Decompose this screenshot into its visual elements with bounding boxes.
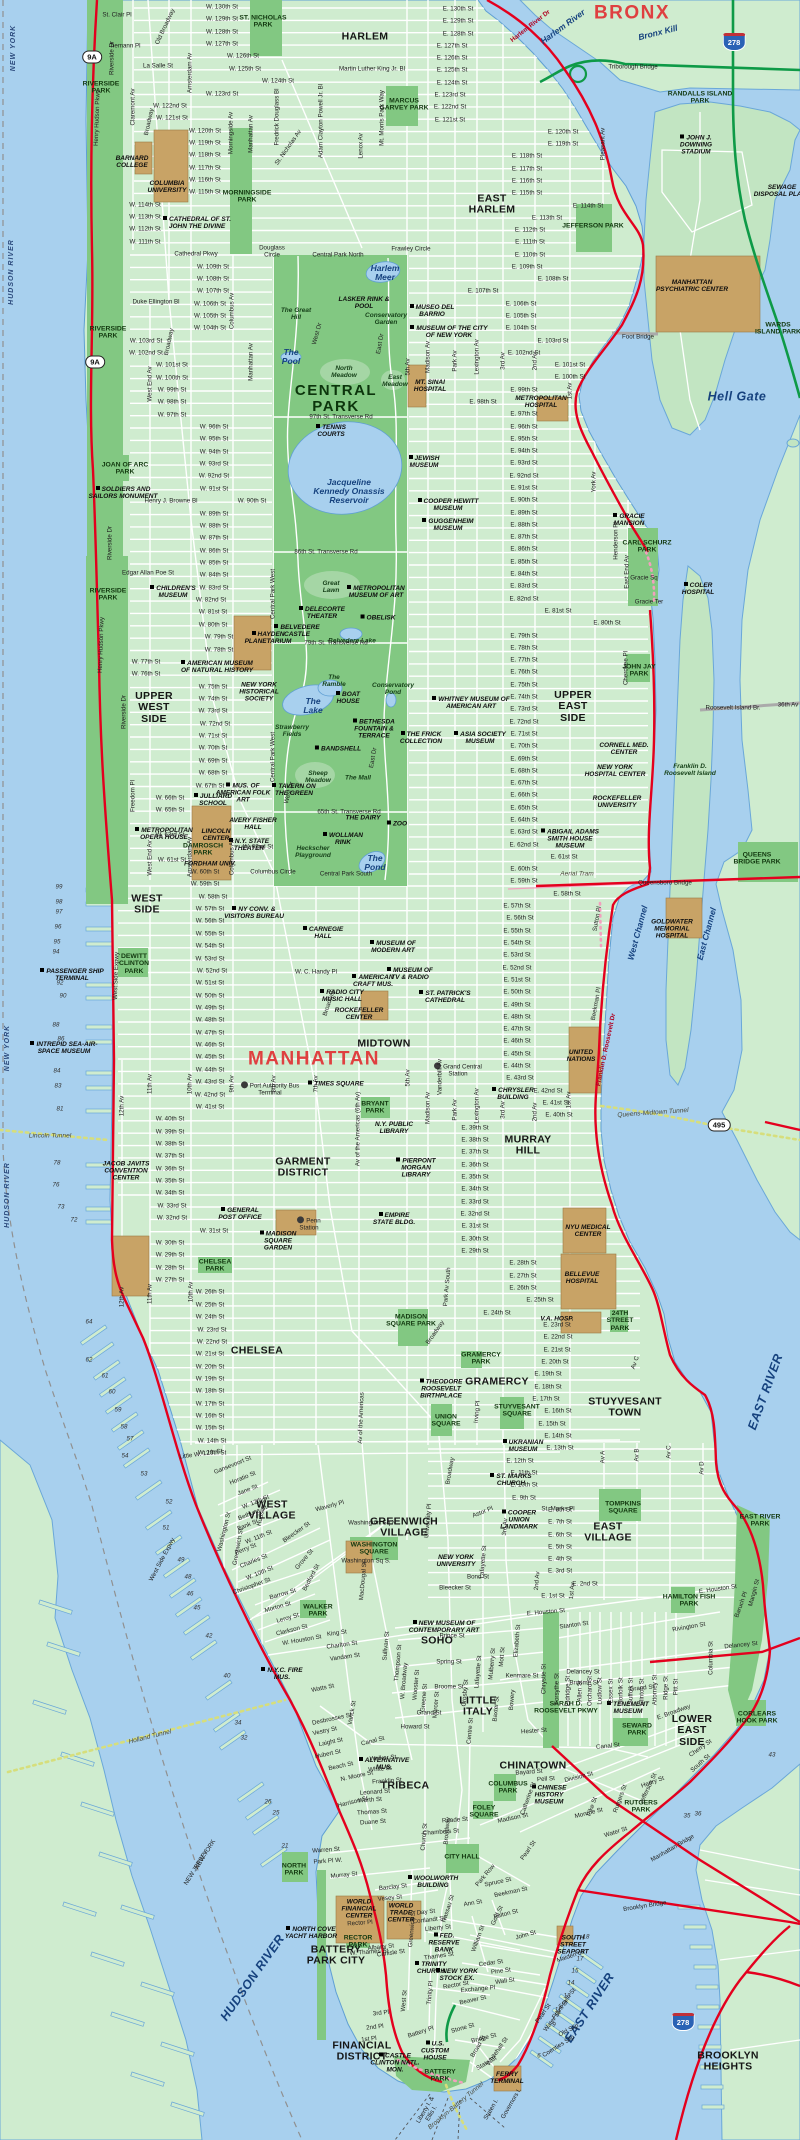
map-label-trinity-church: TRINITY CHURCH bbox=[410, 1961, 452, 1975]
street-label-w-51st-st: W. 51st St bbox=[196, 981, 224, 988]
street-label-w-100th-st: W. 100th St bbox=[156, 376, 188, 383]
landmark-square-icon bbox=[323, 832, 327, 836]
map-label-tompkins-square: TOMPKINS SQUARE bbox=[595, 1501, 651, 1516]
map-label-garment-district: GARMENT DISTRICT bbox=[270, 1157, 336, 1180]
street-label-e-16th-st: E. 16th St bbox=[544, 1409, 571, 1416]
map-label-essex-st: Essex St bbox=[609, 1679, 616, 1703]
map-label-81: 81 bbox=[57, 1107, 64, 1114]
landmark-square-icon bbox=[401, 731, 405, 735]
map-label-beaver-st: Beaver St bbox=[459, 1995, 487, 2007]
map-label-park-row: Park Row bbox=[475, 1864, 497, 1889]
map-label-laight-st: Laight St bbox=[318, 1737, 343, 1749]
map-label-little-italy: LITTLE ITALY bbox=[453, 1696, 503, 1719]
map-label-hamilton-fish-park: HAMILTON FISH PARK bbox=[662, 1594, 716, 1609]
map-label-12th-av: 12th Av bbox=[120, 1287, 127, 1308]
street-label-w-43rd-st: W. 43rd St bbox=[196, 1080, 225, 1087]
map-label-vestry-st: Vestry St bbox=[312, 1726, 338, 1738]
street-label-e-18th-st: E. 18th St bbox=[534, 1385, 561, 1392]
map-label-nyu-medical-center: NYU MEDICAL CENTER bbox=[563, 1224, 613, 1238]
street-label-w-13th-st: W. 13th St bbox=[198, 1451, 227, 1458]
map-label-lexington-av: Lexington Av bbox=[475, 1088, 482, 1123]
map-label-delancey-st: Delancey St bbox=[566, 1670, 599, 1677]
landmark-square-icon bbox=[272, 783, 276, 787]
map-label-west-side: WEST SIDE bbox=[124, 894, 170, 917]
street-label-w-70th-st: W. 70th St bbox=[199, 746, 228, 753]
map-label-10th-av: 10th Av bbox=[189, 1282, 196, 1303]
street-label-w-101st-st: W. 101st St bbox=[156, 363, 188, 370]
map-label-12th-av: 12th Av bbox=[120, 1096, 127, 1117]
map-label-henry-hudson-pkwy: Henry Hudson Pkwy bbox=[98, 617, 107, 673]
map-label-avery-fisher-hall: AVERY FISHER HALL bbox=[223, 817, 283, 831]
map-label-gold-st: Gold St bbox=[491, 1905, 506, 1927]
street-label-e-17th-st: E. 17th St bbox=[532, 1397, 559, 1404]
map-label-allen-st: Allen St bbox=[578, 1680, 585, 1701]
map-label-n-y-public-library: N.Y. PUBLIC LIBRARY bbox=[369, 1121, 419, 1135]
landmark-square-icon bbox=[387, 820, 391, 824]
street-label-e-33rd-st: E. 33rd St bbox=[461, 1200, 489, 1207]
street-label-e-9th-st: E. 9th St bbox=[512, 1496, 536, 1503]
street-label-w-76th-st: W. 76th St bbox=[132, 672, 161, 679]
street-label-w-84th-st: W. 84th St bbox=[200, 573, 229, 580]
map-label-harrison-st: Harrison St bbox=[337, 1796, 369, 1810]
map-label-tenement-museum: TENEMENT MUSEUM bbox=[602, 1701, 654, 1715]
map-label-lincoln-tunnel: Lincoln Tunnel bbox=[29, 1132, 71, 1139]
map-label-world-financial-center: WORLD FINANCIAL CENTER bbox=[332, 1898, 386, 1919]
station-dot-icon bbox=[241, 1081, 248, 1088]
street-label-e-44th-st: E. 44th St bbox=[503, 1064, 530, 1071]
street-label-w-63rd-st: W. 63rd St bbox=[156, 833, 185, 840]
map-label-north-cove-yacht-harbor: NORTH COVE YACHT HARBOR bbox=[277, 1926, 345, 1940]
map-label-bleecker-st: Bleecker St bbox=[282, 1521, 312, 1545]
map-label-the-mall: The Mall bbox=[344, 774, 372, 781]
map-label-84: 84 bbox=[54, 1069, 61, 1076]
map-label-54: 54 bbox=[122, 1454, 129, 1461]
map-label-desbrosses-st: Desbrosses St bbox=[312, 1713, 353, 1728]
street-label-w-59th-st: W. 59th St bbox=[191, 882, 220, 889]
map-label-albany-st: Albany St bbox=[367, 1943, 394, 1952]
map-label-the-pond: The Pond bbox=[360, 854, 390, 872]
map-label-grand-central-station: Grand Central Station bbox=[433, 1062, 483, 1077]
street-label-e-112th-st: E. 112th St bbox=[515, 228, 545, 235]
map-label-freedom-pl: Freedom Pl bbox=[131, 780, 138, 812]
landmark-square-icon bbox=[418, 498, 422, 502]
map-label-triborough-bridge: Triborough Bridge bbox=[608, 65, 657, 72]
street-label-w-21st-st: W. 21st St bbox=[196, 1352, 224, 1359]
map-label-empire-state-bldg: EMPIRE STATE BLDG. bbox=[371, 1212, 417, 1226]
street-label-w-66th-st: W. 66th St bbox=[156, 796, 185, 803]
landmark-square-icon bbox=[96, 486, 100, 490]
map-label-gansevoort-st: Gansevoort St bbox=[213, 1455, 252, 1476]
map-label-delecorte-theater: DELECORTE THEATER bbox=[292, 606, 352, 620]
street-label-w-58th-st: W. 58th St bbox=[199, 895, 228, 902]
street-label-w-71st-st: W. 71st St bbox=[199, 734, 227, 741]
map-label-riverside-dr: Riverside Dr bbox=[108, 526, 115, 560]
street-label-w-38th-st: W. 38th St bbox=[156, 1142, 185, 1149]
map-label-broadway: Broadway bbox=[443, 1817, 452, 1845]
street-label-w-23rd-st: W. 23rd St bbox=[198, 1328, 227, 1335]
street-label-w-75th-st: W. 75th St bbox=[199, 685, 228, 692]
map-label-columbus-circle: Columbus Circle bbox=[250, 870, 296, 877]
map-label-washington-st: Washington St bbox=[217, 1512, 233, 1552]
map-label-east-river: EAST RIVER bbox=[563, 1971, 618, 2045]
map-label-broadway: Broadway bbox=[164, 328, 176, 356]
map-label-morningside-av: Morningside Av bbox=[229, 112, 236, 154]
map-label-86: 86 bbox=[58, 1037, 65, 1044]
map-label-theodore-roosevelt-birthplace: THEODORE ROOSEVELT BIRTHPLACE bbox=[407, 1378, 475, 1399]
map-label-lasker-rink-pool: LASKER RINK & POOL bbox=[333, 296, 395, 310]
map-label-claremont-av: Claremont Av bbox=[131, 88, 138, 125]
map-label-ny-conv-visitors-bureau: NY CONV. & VISITORS BUREAU bbox=[221, 906, 287, 920]
map-label-wards-island-park: WARDS ISLAND PARK bbox=[753, 322, 800, 337]
map-label-marcus-garvey-park: MARCUS GARVEY PARK bbox=[377, 98, 431, 113]
map-label-bowery: Bowery bbox=[509, 1689, 517, 1710]
map-label-madison-square-park: MADISON SQUARE PARK bbox=[384, 1314, 438, 1329]
map-label-irving-pl: Irving Pl bbox=[474, 1401, 483, 1424]
street-label-e-3rd-st: E. 3rd St bbox=[548, 1569, 572, 1576]
map-label-e-houston-st: E. Houston St bbox=[699, 1584, 738, 1596]
map-label-u-s-custom-house: U.S. CUSTOM HOUSE bbox=[412, 2040, 458, 2061]
map-label-3rd-pl: 3rd Pl bbox=[373, 2010, 390, 2018]
map-label-columbus-park: COLUMBUS PARK bbox=[480, 1781, 536, 1796]
map-label-holland-tunnel: Holland Tunnel bbox=[128, 1728, 172, 1746]
map-label-coler-hospital: COLER HOSPITAL bbox=[672, 582, 724, 596]
map-label-stone-st: Stone St bbox=[451, 2023, 476, 2036]
map-label-broome-st: Broome St bbox=[569, 1681, 598, 1688]
map-label-franklin-d-roosevelt-island: Franklin D. Roosevelt Island bbox=[660, 763, 720, 777]
map-label-west-end-av: West End Av bbox=[148, 840, 155, 875]
map-label-riverside-dr: Riverside Dr bbox=[122, 695, 129, 729]
street-label-w-42nd-st: W. 42nd St bbox=[195, 1093, 225, 1100]
street-label-e-82nd-st: E. 82nd St bbox=[510, 597, 539, 604]
street-label-w-60th-st: W. 60th St bbox=[191, 870, 220, 877]
street-label-e-94th-st: E. 94th St bbox=[510, 449, 537, 456]
street-label-e-2nd-st: E. 2nd St bbox=[572, 1582, 597, 1589]
landmark-square-icon bbox=[194, 793, 198, 797]
landmark-square-icon bbox=[387, 967, 391, 971]
map-label-cortlandt-st: Cortlandt St bbox=[412, 1916, 445, 1926]
map-label-bleecker-st: Bleecker St bbox=[439, 1586, 471, 1593]
map-label-cooper-union-landmark: COOPER UNION LANDMARK bbox=[492, 1509, 546, 1530]
street-label-e-90th-st: E. 90th St bbox=[510, 498, 537, 505]
map-label-21: 21 bbox=[282, 1844, 289, 1851]
street-label-w-77th-st: W. 77th St bbox=[132, 660, 161, 667]
street-label-e-5th-st: E. 5th St bbox=[548, 1545, 572, 1552]
map-label-east-village: EAST VILLAGE bbox=[579, 1522, 637, 1545]
street-label-e-103rd-st: E. 103rd St bbox=[538, 339, 569, 346]
landmark-square-icon bbox=[260, 1230, 264, 1234]
map-label-joan-of-arc-park: JOAN OF ARC PARK bbox=[99, 462, 151, 477]
street-label-e-128th-st: E. 128th St bbox=[443, 32, 474, 39]
map-label-upper-west-side: UPPER WEST SIDE bbox=[129, 691, 179, 725]
map-label-vanderbilt-av: Vanderbilt Av bbox=[438, 1059, 445, 1095]
map-label-av-b: Av B bbox=[635, 1449, 642, 1462]
map-label-university-pl: University Pl bbox=[424, 1504, 434, 1539]
street-label-w-123rd-st: W. 123rd St bbox=[206, 92, 238, 99]
street-label-e-97th-st: E. 97th St bbox=[510, 412, 537, 419]
map-label-central-park-west: Central Park West bbox=[271, 569, 278, 619]
map-label-carnegie-hall: CARNEGIE HALL bbox=[298, 926, 348, 940]
street-label-e-31st-st: E. 31st St bbox=[462, 1224, 489, 1231]
landmark-square-icon bbox=[410, 304, 414, 308]
map-label-av-c: Av C bbox=[667, 1445, 674, 1458]
map-label-american-museum-of-natural-history: AMERICAN MUSEUM OF NATURAL HISTORY bbox=[176, 660, 258, 674]
map-label-charles-st: Charles St bbox=[239, 1553, 268, 1570]
map-label-7th-av: 7th Av bbox=[314, 1075, 321, 1092]
map-label-east-end-av: East End Av bbox=[625, 555, 632, 589]
street-label-e-1st-st: E. 1st St bbox=[541, 1594, 564, 1601]
map-label-north-meadow: North Meadow bbox=[323, 365, 365, 379]
street-label-w-61st-st: W. 61st St bbox=[158, 858, 186, 865]
map-label-spring-st: Spring St bbox=[436, 1660, 461, 1667]
map-label-ann-st: Ann St bbox=[463, 1899, 482, 1909]
street-label-e-76th-st: E. 76th St bbox=[510, 670, 537, 677]
map-label-26: 26 bbox=[265, 1800, 272, 1807]
map-label-chelsea: CHELSEA bbox=[231, 1345, 283, 1356]
map-label-aerial-tram: Aerial Tram bbox=[560, 870, 594, 877]
map-label-64: 64 bbox=[86, 1320, 93, 1327]
map-label-east-dr: East Dr bbox=[376, 333, 386, 354]
map-label-henry-st: Henry St bbox=[641, 1776, 666, 1791]
map-label-west-end-av: West End Av bbox=[148, 366, 155, 401]
map-label-new-york: NEW YORK bbox=[194, 1839, 217, 1871]
map-label-julliard-school: JULLIARD SCHOOL bbox=[186, 793, 240, 807]
map-label-madison-av: Madison Av bbox=[426, 341, 433, 373]
street-label-w-45th-st: W. 45th St bbox=[196, 1055, 225, 1062]
map-label-north-park: NORTH PARK bbox=[274, 1863, 314, 1878]
map-label-fed-reserve-bank: FED. RESERVE BANK bbox=[421, 1932, 467, 1953]
map-label-clarkson-st: Clarkson St bbox=[276, 1624, 309, 1638]
map-label-day-st: Day St bbox=[416, 1909, 435, 1918]
street-label-w-109th-st: W. 109th St bbox=[197, 265, 229, 272]
map-label-harlem: HARLEM bbox=[342, 31, 389, 42]
map-label-bronx: BRONX bbox=[594, 4, 670, 25]
map-label-brooklyn-bridge: Brooklyn Bridge bbox=[623, 1900, 667, 1913]
street-label-e-109th-st: E. 109th St bbox=[512, 265, 543, 272]
map-label-manhattan: MANHATTAN bbox=[248, 1050, 380, 1071]
street-label-e-7th-st: E. 7th St bbox=[548, 1520, 572, 1527]
map-label-the-dairy: THE DAIRY bbox=[345, 814, 381, 821]
street-label-e-60th-st: E. 60th St bbox=[510, 867, 537, 874]
street-label-e-10th-st: E. 10th St bbox=[510, 1483, 537, 1490]
map-label-mott-st: Mott St bbox=[499, 1647, 507, 1667]
map-label-belvedere-castle: BELVEDERE CASTLE bbox=[268, 624, 326, 638]
street-label-e-14th-st: E. 14th St bbox=[544, 1434, 571, 1441]
map-label-cooper-hewitt-museum: COOPER HEWITT MUSEUM bbox=[410, 498, 486, 512]
map-label-11th-av: 11th Av bbox=[148, 1074, 155, 1094]
map-label-astor-pl: Astor Pl bbox=[472, 1506, 495, 1520]
map-label-ferry-terminal: FERRY TERMINAL bbox=[479, 2071, 535, 2085]
map-label-la-salle-st: La Salle St bbox=[143, 64, 173, 71]
street-label-w-93rd-st: W. 93rd St bbox=[200, 462, 229, 469]
map-label-washington-square: WASHINGTON SQUARE bbox=[337, 1542, 411, 1557]
map-label-reade-st: Reade St bbox=[442, 1817, 468, 1825]
map-label-water-st: Water St bbox=[604, 1826, 629, 1840]
street-label-e-27th-st: E. 27th St bbox=[509, 1274, 536, 1281]
map-label-51: 51 bbox=[163, 1526, 170, 1533]
map-label-howard-st: Howard St bbox=[401, 1725, 430, 1732]
map-label-waverly-pl: Waverly Pl bbox=[315, 1500, 345, 1514]
landmark-square-icon bbox=[252, 631, 256, 635]
map-label-columbia-university: COLUMBIA UNIVERSITY bbox=[134, 180, 200, 194]
map-label-catherine-st: Catherine St bbox=[520, 1782, 538, 1817]
map-label-vandam-st: Vandam St bbox=[330, 1653, 361, 1664]
street-label-e-58th-st: E. 58th St bbox=[553, 892, 580, 899]
map-label-front-st: Front St bbox=[552, 1999, 571, 2020]
map-label-united-nations: UNITED NATIONS bbox=[557, 1049, 605, 1063]
map-label-58: 58 bbox=[121, 1425, 128, 1432]
map-label-little-w-12th-st: Little W. 12th St bbox=[179, 1449, 223, 1462]
street-label-w-121st-st: W. 121st St bbox=[156, 116, 188, 123]
map-label-3rd-av: 3rd Av bbox=[501, 1101, 508, 1118]
map-label-v-a-hosp: V.A. HOSP. bbox=[539, 1315, 575, 1322]
map-label-old-slip: Old Slip bbox=[558, 2023, 580, 2039]
street-label-w-56th-st: W. 56th St bbox=[196, 919, 225, 926]
map-label-charlton-st: Charlton St bbox=[326, 1641, 358, 1652]
map-label-8th-av: 8th Av bbox=[272, 1075, 279, 1092]
street-label-e-118th-st: E. 118th St bbox=[512, 154, 542, 161]
street-label-w-122nd-st: W. 122nd St bbox=[153, 104, 187, 111]
street-label-e-77th-st: E. 77th St bbox=[510, 658, 537, 665]
street-label-e-101st-st: E. 101st St bbox=[555, 363, 585, 370]
street-label-w-89th-st: W. 89th St bbox=[200, 512, 229, 519]
map-label-n-y-state-theater: N.Y. STATE THEATER bbox=[222, 838, 276, 852]
street-label-w-105th-st: W. 105th St bbox=[194, 314, 226, 321]
map-label-baxter-st: Baxter St bbox=[493, 1696, 502, 1722]
map-label-w-c-handy-pl: W. C. Handy Pl bbox=[295, 970, 337, 977]
landmark-square-icon bbox=[316, 424, 320, 428]
map-label-pike-st: Pike St bbox=[587, 1797, 600, 1818]
street-label-e-46th-st: E. 46th St bbox=[503, 1039, 530, 1046]
map-label-greene-st: Greene St bbox=[420, 1684, 429, 1713]
landmark-square-icon bbox=[541, 828, 545, 832]
map-label-trinity-pl: Trinity Pl bbox=[427, 1981, 436, 2005]
map-label-horatio-st: Horatio St bbox=[229, 1471, 257, 1488]
street-label-e-66th-st: E. 66th St bbox=[510, 793, 537, 800]
street-label-e-35th-st: E. 35th St bbox=[461, 1175, 488, 1182]
map-label-south-street-seaport: SOUTH STREET SEAPORT bbox=[550, 1934, 596, 1955]
map-label-murray-st: Murray St bbox=[330, 1871, 357, 1880]
map-label-hayden-planetarium: HAYDEN PLANETARIUM bbox=[232, 631, 304, 645]
street-label-e-130th-st: E. 130th St bbox=[443, 7, 474, 14]
map-label-9th-av: 9th Av bbox=[230, 1075, 237, 1092]
street-label-w-120th-st: W. 120th St bbox=[189, 129, 221, 136]
map-label-53: 53 bbox=[141, 1472, 148, 1479]
map-label-upper-east-side: UPPER EAST SIDE bbox=[548, 690, 598, 724]
map-label-sullivan-st: Sullivan St bbox=[382, 1631, 391, 1661]
map-label-manhattan-av: Manhattan Av bbox=[249, 115, 256, 153]
map-label-thomas-st: Thomas St bbox=[357, 1809, 387, 1818]
landmark-square-icon bbox=[40, 968, 44, 972]
map-label-grand-st: Grand St bbox=[417, 1711, 442, 1718]
map-label-manhattan-av: Manhattan Av bbox=[249, 343, 256, 381]
street-label-w-20th-st: W. 20th St bbox=[196, 1365, 225, 1372]
map-label-nassau-st: Nassau St bbox=[441, 1894, 456, 1923]
map-label-madison-av: Madison Av bbox=[426, 1092, 433, 1124]
map-label-mt-morris-park-way: Mt. Morris Park Way bbox=[380, 90, 387, 146]
street-label-e-34th-st: E. 34th St bbox=[461, 1187, 488, 1194]
map-label-damrosch-park: DAMROSCH PARK bbox=[174, 843, 232, 858]
street-label-e-86th-st: E. 86th St bbox=[510, 547, 537, 554]
street-label-e-83rd-st: E. 83rd St bbox=[510, 584, 538, 591]
map-label-jewish-museum: JEWISH MUSEUM bbox=[400, 455, 448, 469]
street-label-e-126th-st: E. 126th St bbox=[437, 56, 468, 63]
map-label-lafayette-st: Lafayette St bbox=[474, 1655, 484, 1688]
street-label-e-42nd-st: E. 42nd St bbox=[534, 1089, 563, 1096]
map-label-east-dr: East Dr bbox=[369, 747, 379, 768]
map-label-heckscher-playground: Heckscher Playground bbox=[283, 845, 343, 859]
landmark-square-icon bbox=[607, 1701, 611, 1705]
map-label-thompson-st: Thompson St bbox=[394, 1644, 404, 1681]
map-label-park-av: Park Av bbox=[453, 1099, 460, 1120]
map-label-32: 32 bbox=[241, 1736, 248, 1743]
map-label-chambers-st: Chambers St bbox=[423, 1828, 459, 1837]
map-label-79th-st-transverse-rd: 79th St. Transverse Rd bbox=[304, 641, 367, 648]
map-label-the-ramble: The Ramble bbox=[317, 674, 351, 688]
street-label-w-52nd-st: W. 52nd St bbox=[197, 969, 227, 976]
route-shield-9a: 9A bbox=[85, 356, 105, 369]
map-label-columbia-st: Columbia St bbox=[709, 1641, 716, 1675]
street-label-e-81st-st: E. 81st St bbox=[545, 609, 572, 616]
map-label-wooster-st: Wooster St bbox=[412, 1670, 421, 1701]
street-label-w-88th-st: W. 88th St bbox=[200, 524, 229, 531]
map-label-jefferson-st: Jefferson St bbox=[639, 1773, 659, 1806]
map-label-65th-st-transverse-rd: 65th St. Transverse Rd bbox=[317, 810, 380, 817]
street-label-w-102nd-st: W. 102nd St bbox=[129, 351, 163, 358]
map-label-conservatory-garden: Conservatory Garden bbox=[354, 312, 418, 326]
street-label-e-85th-st: E. 85th St bbox=[510, 560, 537, 567]
map-label-pitt-st: Pitt St bbox=[674, 1679, 681, 1696]
map-label-bond-st: Bond St bbox=[467, 1575, 489, 1582]
map-label-canal-st: Canal St bbox=[596, 1742, 620, 1751]
street-label-w-19th-st: W. 19th St bbox=[196, 1377, 225, 1384]
landmark-square-icon bbox=[353, 718, 357, 722]
street-label-e-15th-st: E. 15th St bbox=[538, 1422, 565, 1429]
street-label-e-38th-st: E. 38th St bbox=[461, 1138, 488, 1145]
map-label-macdougal-st: MacDougal St bbox=[359, 1561, 369, 1600]
map-label-warren-st: Warren St bbox=[312, 1847, 340, 1856]
landmark-square-icon bbox=[303, 926, 307, 930]
route-shield-495: 495 bbox=[708, 1119, 731, 1132]
map-label-gramercy-park: GRAMERCY PARK bbox=[451, 1352, 511, 1367]
map-label-barclay-st: Barclay St bbox=[379, 1883, 408, 1893]
street-label-w-97th-st: W. 97th St bbox=[158, 413, 187, 420]
map-label-1st-av: 1st Av bbox=[567, 1092, 574, 1109]
street-label-w-18th-st: W. 18th St bbox=[196, 1389, 225, 1396]
map-label-chinatown: CHINATOWN bbox=[499, 1760, 566, 1771]
map-label-financial-district: FINANCIAL DISTRICT bbox=[322, 2041, 402, 2064]
map-label-2nd-av: 2nd Av bbox=[534, 1571, 542, 1590]
map-label-lexington-av: Lexington Av bbox=[475, 339, 482, 374]
map-label-overlay: BRONXMANHATTANBROOKLYN HEIGHTSNEW YORKHU… bbox=[0, 0, 800, 2140]
map-label-city-hall: CITY HALL bbox=[444, 1853, 480, 1860]
map-label-n-y-c-fire-mus: N.Y.C. FIRE MUS. bbox=[261, 1667, 303, 1681]
map-label-3rd-av: 3rd Av bbox=[501, 352, 508, 369]
map-label-10th-av: 10th Av bbox=[188, 1074, 195, 1095]
street-label-w-17th-st: W. 17th St bbox=[196, 1402, 225, 1409]
street-label-e-88th-st: E. 88th St bbox=[510, 523, 537, 530]
map-label-st-nicholas-park: ST. NICHOLAS PARK bbox=[234, 15, 292, 30]
map-label-baruch-pl: Baruch Pl bbox=[734, 1591, 749, 1618]
street-label-e-22nd-st: E. 22nd St bbox=[544, 1335, 573, 1342]
map-label-24th-street-park: 24TH STREET PARK bbox=[599, 1310, 641, 1332]
street-label-w-98th-st: W. 98th St bbox=[158, 400, 187, 407]
landmark-square-icon bbox=[396, 1157, 400, 1161]
map-label-chrystie-st: Chrystie St bbox=[542, 1664, 549, 1694]
map-label-lenox-av: Lenox Av bbox=[359, 133, 366, 158]
map-label-state-st: State St bbox=[476, 2056, 498, 2073]
map-label-tiemann-pl: Tiemann Pl bbox=[109, 44, 140, 51]
map-label-48: 48 bbox=[185, 1575, 192, 1582]
